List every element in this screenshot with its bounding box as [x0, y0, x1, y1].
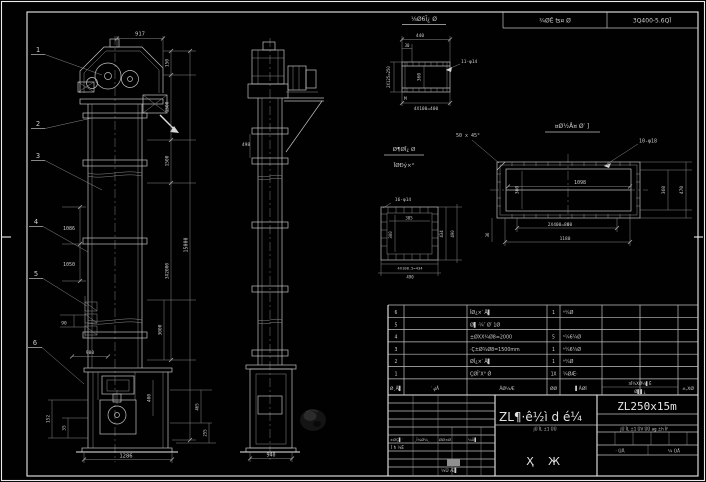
bom-material: ʰ¼Ø [563, 358, 574, 365]
bom-header-weight: ¤Ī¾XØ¼▌Ē [629, 381, 652, 386]
dim-360-b: 360 [515, 186, 521, 194]
sig-cell-b: ¸Ī¼Ø¼¸ [415, 437, 430, 442]
bom-qty: 1 [552, 310, 555, 316]
bom-header-material: ▌ÅØĪ [574, 385, 587, 392]
title-block: ZL250x15m jŪ ĪL ±1 ŪV ŪŪ ag ±h Īf jŪ ĪL … [388, 395, 698, 476]
drawing-title: ZL¶·ê½ì d é¼ [499, 410, 582, 424]
balloon-1: 1 [36, 46, 40, 54]
bom-name: Ø▌·¼″ Ø′ 1Ø [470, 321, 500, 328]
model-designation: ZL250x15m [617, 400, 677, 413]
detail-a-note: M [404, 96, 407, 102]
highlight-cell [447, 459, 460, 466]
bom-header-qty: ØØ [550, 385, 558, 392]
dim-400: 400 [147, 394, 153, 402]
detail-view-b: ¤Ø½Å¤ Ø′ ] 50 x 45° 10-φ18 1098 360 360 … [456, 123, 692, 246]
sig-cell-e: Ī ħ ¼Ē [391, 445, 404, 450]
bom-row: 3 ·Ç±Ø¾Ø8=1500mm 1 ʰ¼6¼Ø [395, 346, 582, 353]
dim-255: 255 [203, 429, 208, 437]
dim-3000: 3000 [158, 324, 164, 335]
dim-360-a: 360 [417, 73, 423, 81]
bom-no: 6 [395, 310, 398, 316]
bom-table: 6 ĪØ¿×′ Å▌ 1 ʰ¼Ø 5 Ø▌·¼″ Ø′ 1Ø 4 ±ØXX¾Ø8… [388, 305, 698, 476]
detail-view-a: ⅛Ø6Ī¿ Ø 440 30 2X125=250 360 11-φ14 M 4X… [386, 16, 478, 112]
dim-2x400: 2X400=800 [548, 222, 573, 228]
dim-150: 150 [165, 59, 171, 67]
dim-940: 940 [266, 453, 275, 459]
sheet-number: ¼ ŪÅ [668, 448, 681, 455]
bom-qty: 1 [552, 359, 555, 365]
detail-b-holes-label: 10-φ18 [639, 139, 657, 145]
cad-drawing-canvas[interactable]: ¾ØĒ ʦ¤ Ø 3Q400-5.6QĪ [0, 0, 706, 482]
dim-440: 440 [416, 33, 424, 39]
dim-3x2000: 3X2000 [165, 263, 171, 280]
detail-c-label1: Ø¶ØĪ¿ Ø [393, 146, 416, 153]
sheet-count: · ŪÅ [615, 448, 625, 455]
dim-1286: 1286 [119, 454, 132, 460]
dim-498: 498 [242, 142, 250, 148]
dim-30: 30 [405, 43, 410, 48]
bom-no: 4 [395, 335, 398, 341]
detail-a-label: ⅛Ø6Ī¿ Ø [411, 16, 437, 23]
dim-900: 900 [86, 350, 94, 356]
dim-2x125: 2X125=250 [386, 66, 391, 88]
dim-434-r: 434 [439, 230, 444, 238]
bom-no: 3 [395, 347, 398, 353]
balloon-2: 2 [36, 120, 40, 128]
dim-470: 470 [679, 186, 685, 194]
title-char-a: Ҳ [526, 455, 534, 468]
bom-header-row: Ø¸Å▌ ′ ؼÅ ÅØ¼Æ ØØ ▌ÅØĪ ¤Ī¾XØ¼▌Ē Ø▌▌¿ ±,X… [390, 381, 695, 394]
dim-1098: 1098 [574, 180, 586, 186]
dim-4x108: 4X108.5=434 [397, 266, 423, 271]
bom-row: 1 ÇØĪ″X° Ǿ 1X ¼ØÆ· [395, 371, 578, 378]
sig-cell-a: ±ØÇ▌′ [390, 437, 403, 442]
dim-360-c: 360 [661, 186, 667, 194]
smudge-artifact [300, 409, 326, 431]
dim-917: 917 [135, 32, 145, 38]
dim-152: 152 [46, 415, 52, 423]
dim-490-b: 490 [406, 275, 414, 280]
balloon-6: 6 [33, 339, 37, 347]
dim-1050: 1050 [63, 262, 75, 268]
detail-c-label2: ĪØÐý×° [394, 162, 415, 169]
chamfer-note: 50 x 45° [456, 133, 480, 139]
dim-1500-a: 1500 [165, 101, 171, 112]
bom-no: 5 [395, 322, 398, 328]
engineering-drawing: ¾ØĒ ʦ¤ Ø 3Q400-5.6QĪ [0, 0, 706, 482]
dim-305: 305 [405, 216, 413, 221]
dim-90: 90 [61, 321, 67, 327]
bom-material: ʰ¼6¼Ø [563, 346, 581, 353]
bom-header-weight-sub: Ø▌▌¿ [634, 389, 645, 394]
detail-view-c: Ø¶ØĪ¿ Ø ĪØÐý×° 16-φ14 305 300 434 490 4X… [378, 146, 462, 280]
dim-490-r: 490 [450, 230, 455, 238]
bom-material: ʰ¼6¼Ø [563, 334, 581, 341]
bom-qty: 5 [552, 335, 555, 341]
bom-header-name: ÅØ¼Æ [499, 385, 515, 392]
title-strip-cell2: 3Q400-5.6QĪ [633, 18, 671, 25]
bom-qty: 1 [552, 347, 555, 353]
balloon-3: 3 [36, 152, 40, 160]
balloon-4: 4 [34, 218, 38, 226]
bom-material: ¼ØÆ· [563, 371, 578, 378]
bom-row: 4 ±ØXX¾Ø8=2000 5 ʰ¼6¼Ø [395, 334, 582, 341]
front-dimensions: 917 1086 1050 90 150 1500 1500 3X2000 30… [46, 32, 217, 464]
dim-35: 35 [62, 425, 68, 431]
drawing-frame: ¾ØĒ ʦ¤ Ø 3Q400-5.6QĪ [2, 2, 705, 481]
dim-465: 465 [195, 403, 200, 411]
title-char-b: Ж [548, 455, 560, 468]
detail-a-holes-label: 11-φ14 [461, 59, 478, 65]
bom-header-no: Ø¸Å▌ [390, 385, 402, 392]
bom-name: ±ØXX¾Ø8=2000 [470, 334, 512, 341]
bom-no: 1 [395, 372, 398, 378]
bom-name: ØĪ¿×′ Å▌ [470, 358, 491, 365]
detail-b-label: ¤Ø½Å¤ Ø′ ] [555, 123, 590, 130]
revision-row: jŪ ĪL ±1 ŪV ŪŪ ag ±h Īf [619, 427, 668, 432]
dim-1086: 1086 [63, 226, 75, 232]
dim-36: 36 [485, 232, 490, 237]
sig-cell-d: ¼Ū▌ [468, 437, 477, 442]
bom-name: ĪØ¿×′ Å▌ [470, 309, 491, 316]
revision-row-left: jŪ ĪL ±1 ŪŪ [532, 427, 556, 432]
dim-15000: 15000 [184, 237, 190, 252]
sig-cell-f: ¼Ū Æ▌ [441, 467, 458, 474]
bom-material: ʰ¼Ø [563, 309, 574, 316]
side-elevation-view: 498 940 [240, 38, 324, 462]
bom-header-remark: ±,XØ [682, 385, 694, 392]
dim-300: 300 [388, 231, 393, 239]
balloon-5: 5 [34, 270, 38, 278]
item-balloons: 1 2 3 4 5 6 [28, 46, 102, 384]
bom-row: 5 Ø▌·¼″ Ø′ 1Ø [395, 321, 501, 328]
dim-1500-b: 1500 [165, 155, 171, 166]
sig-cell-c: ØØ×Ø [439, 437, 451, 442]
dim-1180: 1180 [560, 236, 571, 242]
bom-no: 2 [395, 359, 398, 365]
front-elevation-view [76, 36, 179, 462]
detail-c-holes-label: 16-φ14 [395, 197, 412, 203]
bom-qty: 1X [551, 372, 557, 378]
bom-name: ÇØĪ″X° Ǿ [470, 371, 492, 378]
bom-header-code: ′ ؼÅ [431, 385, 440, 392]
title-strip-cell1: ¾ØĒ ʦ¤ Ø [539, 18, 571, 25]
dim-4x100: 4X100=400 [414, 106, 439, 112]
bom-name: ·Ç±Ø¾Ø8=1500mm [470, 346, 520, 353]
